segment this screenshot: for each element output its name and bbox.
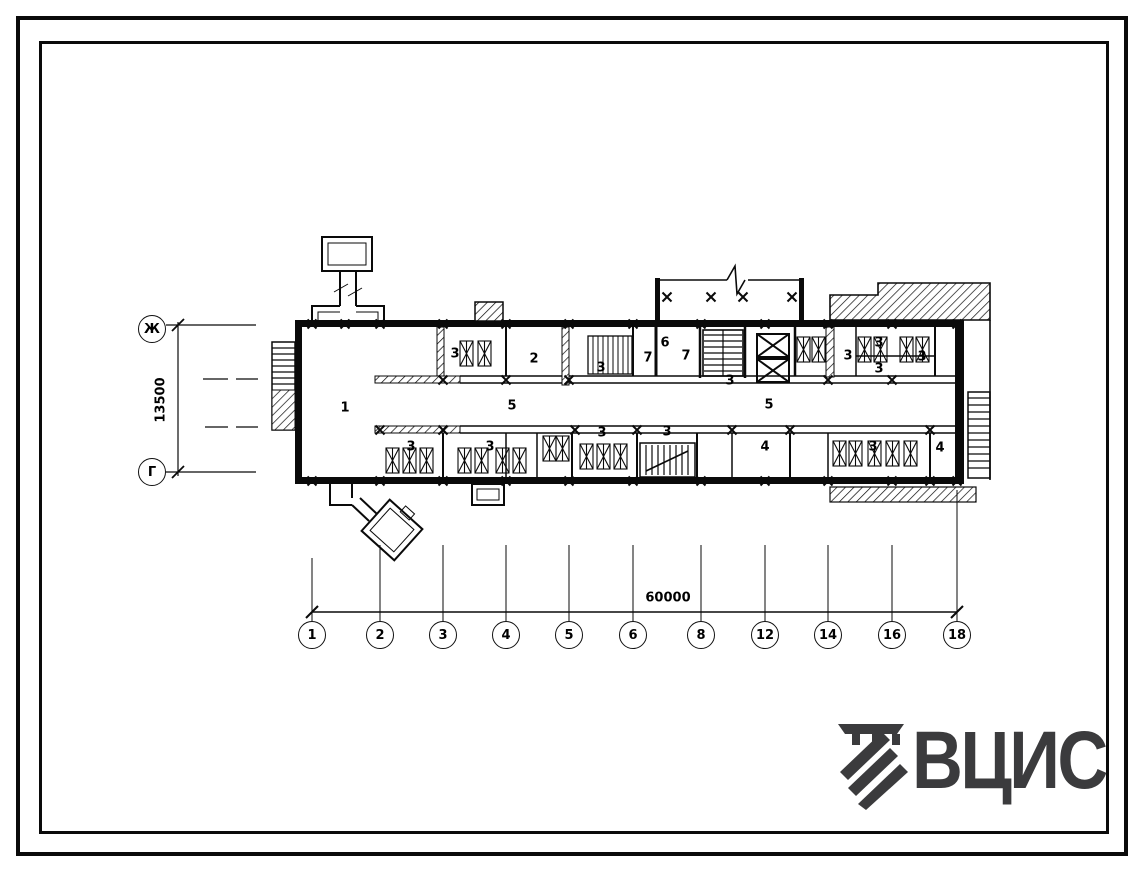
porch-bottom-left	[330, 484, 426, 560]
room-number-label: 1	[340, 401, 349, 416]
room-number-label: 3	[450, 347, 459, 362]
terrace-bottom-right	[830, 487, 976, 502]
room-number-label: 5	[507, 399, 516, 414]
bottom-axis-circle-6: 6	[619, 621, 647, 649]
room-number-label: 3	[406, 440, 415, 455]
bottom-axis-circle-14: 14	[814, 621, 842, 649]
stair-left	[272, 342, 295, 430]
room-number-label: 2	[529, 352, 538, 367]
bottom-axis-circle-4: 4	[492, 621, 520, 649]
room-number-label: 3	[843, 349, 852, 364]
room-number-label: 3	[917, 350, 926, 365]
horizontal-dimension: 60000	[643, 591, 692, 606]
room-number-label: 7	[681, 349, 690, 364]
bottom-axis-circle-18: 18	[943, 621, 971, 649]
bottom-axis-circle-12: 12	[751, 621, 779, 649]
tower-top-left	[312, 237, 384, 322]
left-dimension-lines	[166, 319, 258, 478]
column-markers	[308, 320, 962, 486]
bottom-small-box	[472, 484, 504, 505]
room-number-label: 4	[935, 441, 944, 456]
elevator-shaft	[757, 334, 789, 382]
logo-stripes-icon	[836, 718, 912, 810]
room-number-label: 6	[660, 336, 669, 351]
room-number-label: 3	[596, 361, 605, 376]
top-hatched-box	[475, 302, 503, 321]
room-number-label: 3	[662, 425, 671, 440]
room-number-label: 7	[643, 351, 652, 366]
room-number-label: 3	[725, 374, 734, 389]
room-number-label: 3	[874, 336, 883, 351]
left-axis-circle-g: Г	[138, 458, 166, 486]
org-logo: ВЦИС	[836, 718, 1137, 810]
room-number-label: 5	[764, 398, 773, 413]
stair-top	[703, 330, 743, 376]
top-extension	[655, 266, 804, 320]
logo-text: ВЦИС	[912, 718, 1106, 804]
bottom-axis-circle-2: 2	[366, 621, 394, 649]
bottom-axis-circle-1: 1	[298, 621, 326, 649]
room-number-label: 3	[485, 440, 494, 455]
terrace-top-right	[830, 283, 990, 320]
vertical-dimension: 13500	[154, 375, 169, 424]
bottom-axis-circle-8: 8	[687, 621, 715, 649]
stair-right	[968, 392, 990, 478]
room-number-label: 4	[760, 440, 769, 455]
bottom-axis-circle-16: 16	[878, 621, 906, 649]
room-number-label: 3	[874, 362, 883, 377]
drawing-sheet: Ж Г 13500 60000 123456812141618 13253336…	[0, 0, 1139, 869]
room-number-label: 3	[597, 426, 606, 441]
bottom-dimension-lines	[306, 490, 963, 621]
room-number-label: 3	[868, 440, 877, 455]
stair-bottom	[640, 443, 695, 477]
bottom-axis-circle-5: 5	[555, 621, 583, 649]
left-axis-circle-zh: Ж	[138, 315, 166, 343]
bottom-axis-circle-3: 3	[429, 621, 457, 649]
